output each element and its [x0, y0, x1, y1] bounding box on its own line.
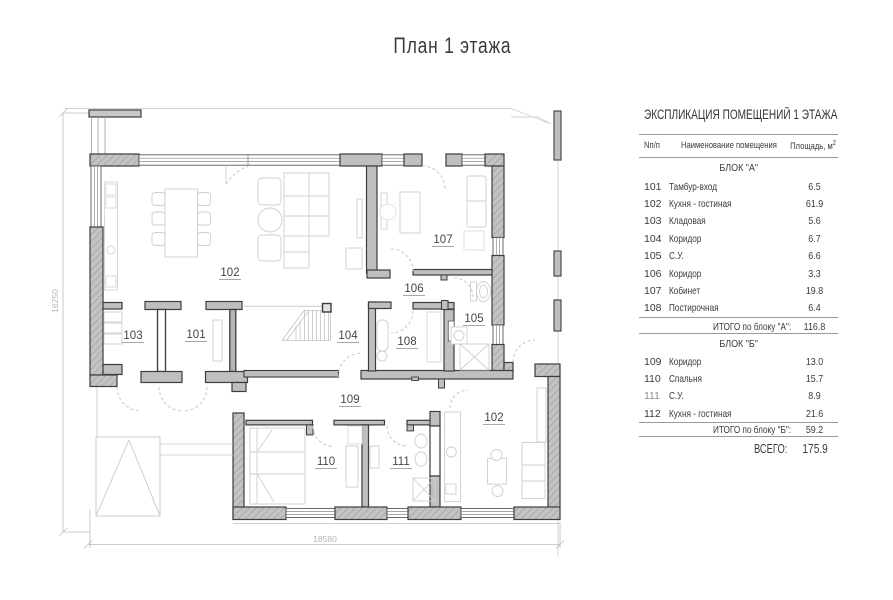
- svg-text:111: 111: [392, 456, 409, 468]
- svg-text:102: 102: [220, 267, 239, 279]
- svg-text:108: 108: [397, 336, 416, 348]
- svg-text:18580: 18580: [313, 534, 337, 544]
- svg-text:16250: 16250: [50, 289, 60, 313]
- svg-text:104: 104: [338, 330, 358, 342]
- svg-text:110: 110: [317, 456, 335, 468]
- svg-text:101: 101: [186, 329, 205, 341]
- svg-text:105: 105: [464, 313, 483, 325]
- svg-text:109: 109: [340, 394, 359, 406]
- svg-text:106: 106: [404, 283, 423, 295]
- svg-text:107: 107: [433, 234, 452, 246]
- svg-text:102: 102: [484, 412, 503, 424]
- svg-text:103: 103: [123, 330, 142, 342]
